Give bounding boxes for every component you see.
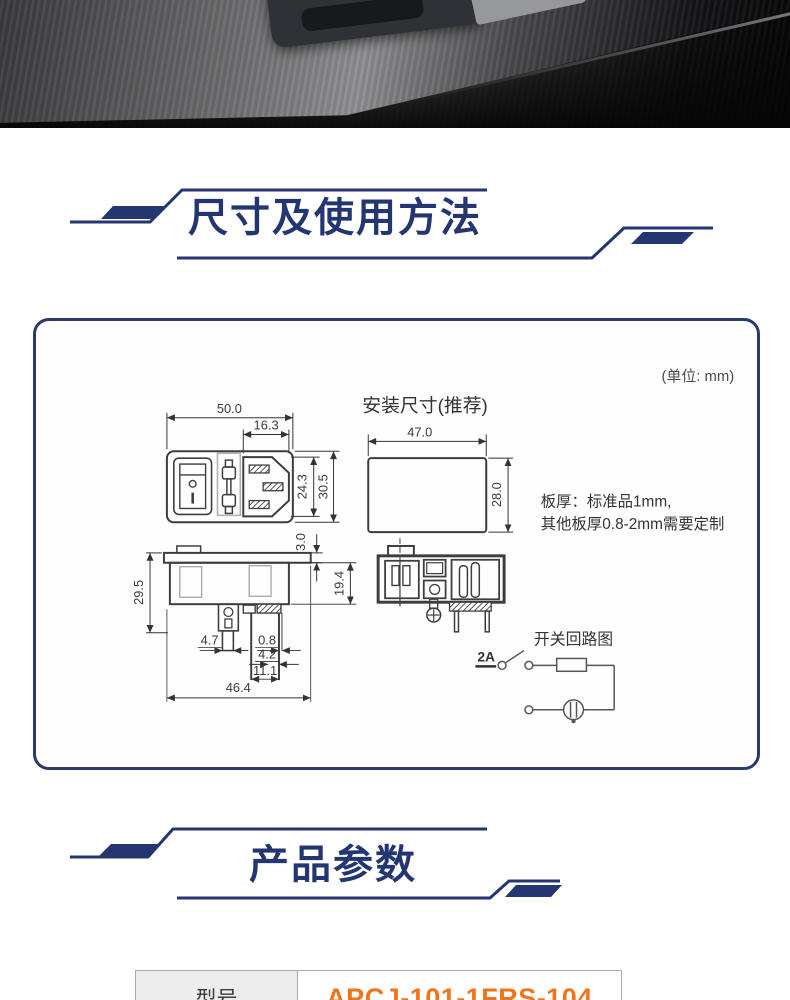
dim-front-height: 30.5 [316,474,331,499]
table-row: 型号 APCJ-101-1FRS-104 [136,971,621,1000]
plate-note-line1: 板厚：标准品1mm, [541,493,672,511]
section-title-params: 产品参数 [0,842,666,888]
dim-bottom-width: 46.4 [226,680,251,695]
install-label: 安装尺寸(推荐) [362,395,488,416]
dim-wall-thickness: 0.8 [258,633,276,648]
circuit-label: 开关回路图 [534,631,613,649]
dim-terminal-span: 11.1 [253,663,277,678]
dim-inlet-width: 16.3 [254,418,279,433]
technical-drawing: (单位: mm) [36,321,757,767]
dim-terminal-width: 4.7 [201,633,219,648]
dim-cutout-width: 47.0 [407,424,432,439]
param-value-cell: APCJ-101-1FRS-104 [298,971,621,1000]
front-view-drawing [167,451,293,522]
socket-module-slot [301,0,425,32]
cross-section-drawing [378,538,504,632]
circuit-current-label: 2A [477,648,495,664]
section-header-params: 产品参数 [0,818,790,918]
cutout-drawing [368,458,486,532]
dim-flange-thickness: 3.0 [293,533,308,551]
dimension-diagram-box: (单位: mm) [33,318,760,770]
dim-front-width: 50.0 [217,401,242,416]
switch-off-mark [189,480,196,487]
dim-inlet-height: 24.3 [295,474,310,499]
plate-note-line2: 其他板厚0.8-2mm需要定制 [541,515,725,533]
dim-body-depth: 19.4 [331,571,346,596]
lamp-symbol [564,700,584,723]
side-view-drawing [164,546,311,680]
product-photo [0,0,790,128]
param-label-cell: 型号 [136,971,298,1000]
circuit-diagram [475,651,614,723]
section-header-dimensions: 尺寸及使用方法 [0,170,790,275]
dim-cutout-height: 28.0 [489,482,504,507]
fuse-holder [217,453,240,515]
fuse-symbol [557,658,587,671]
product-detail-page: 尺寸及使用方法 (单位: mm) [0,0,790,1000]
unit-note: (单位: mm) [662,368,735,385]
section-title-dimensions: 尺寸及使用方法 [0,195,670,241]
switch-blade [506,651,524,663]
params-table: 型号 APCJ-101-1FRS-104 [135,970,622,1000]
dim-total-depth: 29.5 [131,580,146,605]
dim-terminal-pitch: 4.2 [258,646,276,661]
c14-inlet [243,457,289,516]
